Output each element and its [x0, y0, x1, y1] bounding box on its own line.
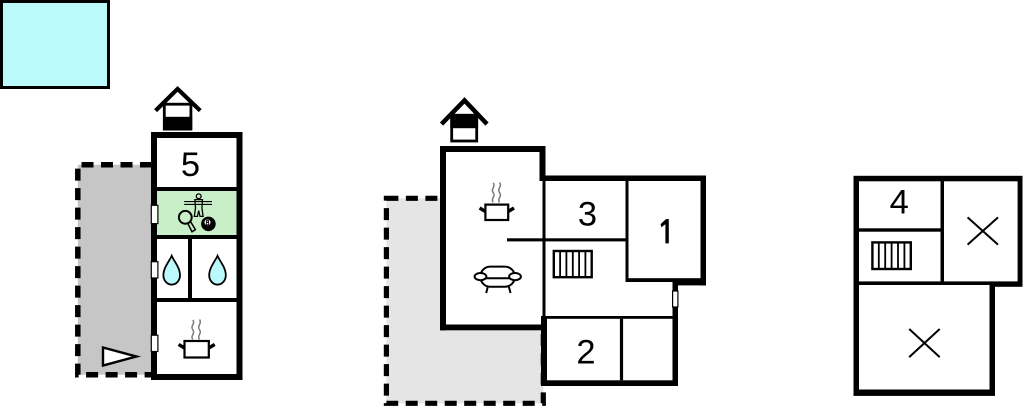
svg-text:5: 5 [181, 146, 200, 184]
svg-text:3: 3 [578, 196, 597, 234]
svg-text:2: 2 [576, 333, 595, 371]
svg-text:4: 4 [890, 184, 909, 222]
